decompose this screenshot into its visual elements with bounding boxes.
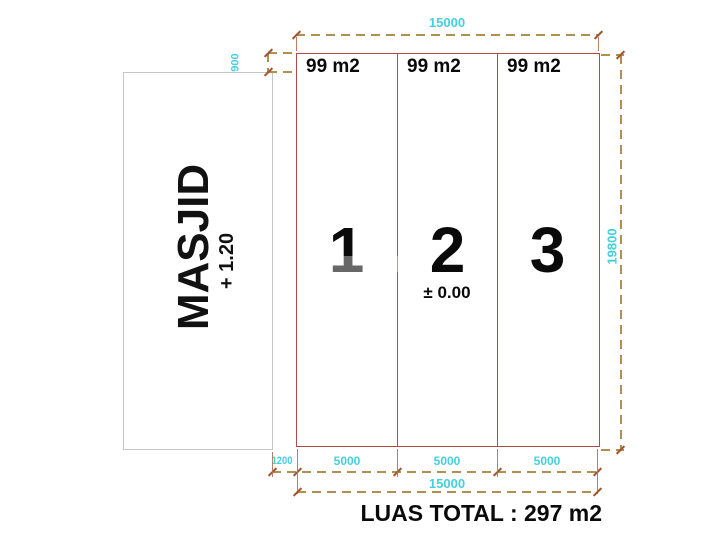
- total-area-text: LUAS TOTAL : 297 m2: [360, 500, 602, 527]
- plot2-area-label: 99 m2: [397, 56, 497, 78]
- dim-top-width-line: [296, 34, 598, 36]
- dim-top-width-label: 15000: [422, 16, 472, 29]
- dim-extension-line: [598, 37, 599, 51]
- dim-extension-line: [296, 37, 297, 51]
- dim-tick: [593, 487, 602, 496]
- dim-extension-line: [297, 449, 298, 494]
- watermark: [331, 256, 419, 272]
- dim-bottom-total-line: [297, 491, 597, 493]
- masjid-label: MASJID: [170, 147, 218, 347]
- site-plan-drawing: MASJID + 1.20 99 m2 99 m2 99 m2 1 2 3 ± …: [0, 0, 714, 536]
- dim-bottom-seg4-label: 5000: [527, 455, 567, 468]
- dim-bottom-segments-line: [272, 471, 598, 473]
- dim-extension-line: [272, 452, 273, 477]
- dim-right-height-label: 19800: [606, 223, 619, 271]
- dim-bottom-seg2-label: 5000: [327, 455, 367, 468]
- dim-extension-line: [268, 52, 296, 54]
- dim-bottom-total-label: 15000: [422, 477, 472, 490]
- dim-extension-line: [597, 449, 598, 494]
- dim-right-height-line: [620, 55, 622, 450]
- plot3-number: 3: [497, 218, 598, 282]
- plot2-elevation: ± 0.00: [397, 283, 497, 303]
- dim-extension-line: [268, 71, 296, 73]
- plot2-number: 2: [397, 218, 498, 282]
- dim-extension-line: [497, 449, 498, 477]
- dim-masjid-offset-label: 900: [230, 43, 243, 83]
- plot3-area-label: 99 m2: [497, 56, 597, 78]
- dim-bottom-seg3-label: 5000: [427, 455, 467, 468]
- masjid-elevation: + 1.20: [216, 201, 238, 321]
- plot1-number: 1: [296, 218, 397, 282]
- dim-extension-line: [397, 449, 398, 477]
- plot1-area-label: 99 m2: [296, 56, 396, 78]
